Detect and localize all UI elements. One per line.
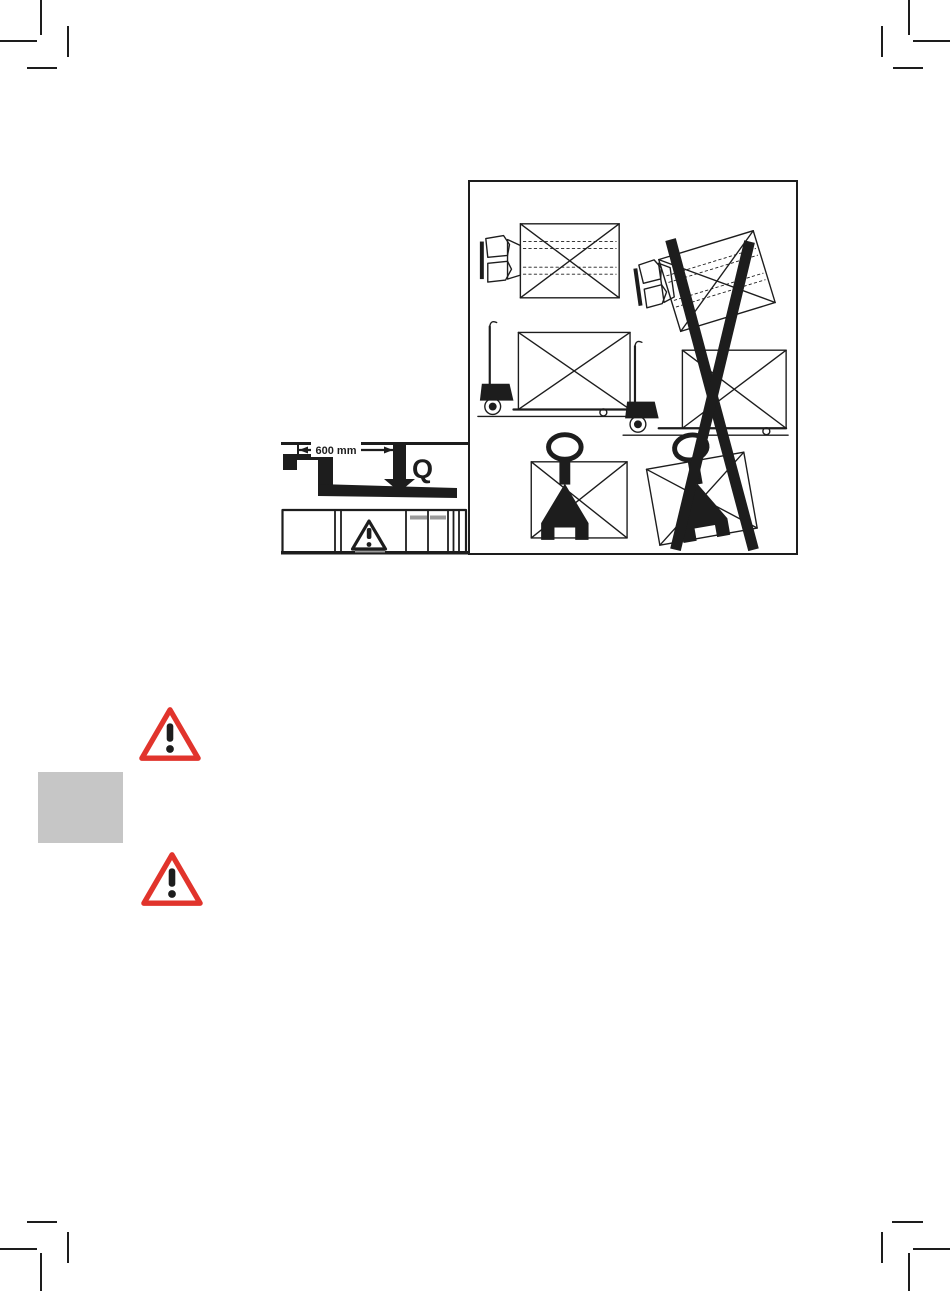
crop-mark xyxy=(27,67,57,69)
crop-mark xyxy=(40,0,42,35)
plate-exclamation-triangle-icon xyxy=(353,521,386,553)
manual-page: 600 mm Q xyxy=(0,0,950,1291)
crop-mark xyxy=(913,1248,950,1250)
panel-top-view-correct xyxy=(480,224,619,298)
load-center-plate-diagram: 600 mm Q xyxy=(281,437,468,557)
crop-mark xyxy=(27,1221,57,1223)
panel-front-view-correct xyxy=(531,435,627,540)
usage-illustration-drawing xyxy=(470,182,796,553)
crop-mark xyxy=(893,67,923,69)
page-edge-tab xyxy=(38,772,123,843)
load-center-drawing: 600 mm Q xyxy=(281,437,468,557)
load-symbol-label: Q xyxy=(412,454,433,484)
exclamation-triangle-icon xyxy=(139,704,201,764)
load-center-dimension-label: 600 mm xyxy=(316,445,357,457)
exclamation-triangle-icon xyxy=(141,849,203,909)
crop-mark xyxy=(881,26,883,57)
crop-mark xyxy=(0,40,37,42)
crop-mark xyxy=(67,26,69,57)
crop-mark xyxy=(67,1232,69,1263)
crop-mark xyxy=(40,1253,42,1291)
panel-side-view-correct xyxy=(478,322,634,417)
crop-mark xyxy=(908,1253,910,1291)
crop-mark xyxy=(908,0,910,35)
crop-mark xyxy=(892,1221,923,1223)
pallet-truck-usage-illustration xyxy=(468,180,798,555)
crop-mark xyxy=(913,40,950,42)
crop-mark xyxy=(881,1232,883,1263)
crop-mark xyxy=(0,1248,37,1250)
